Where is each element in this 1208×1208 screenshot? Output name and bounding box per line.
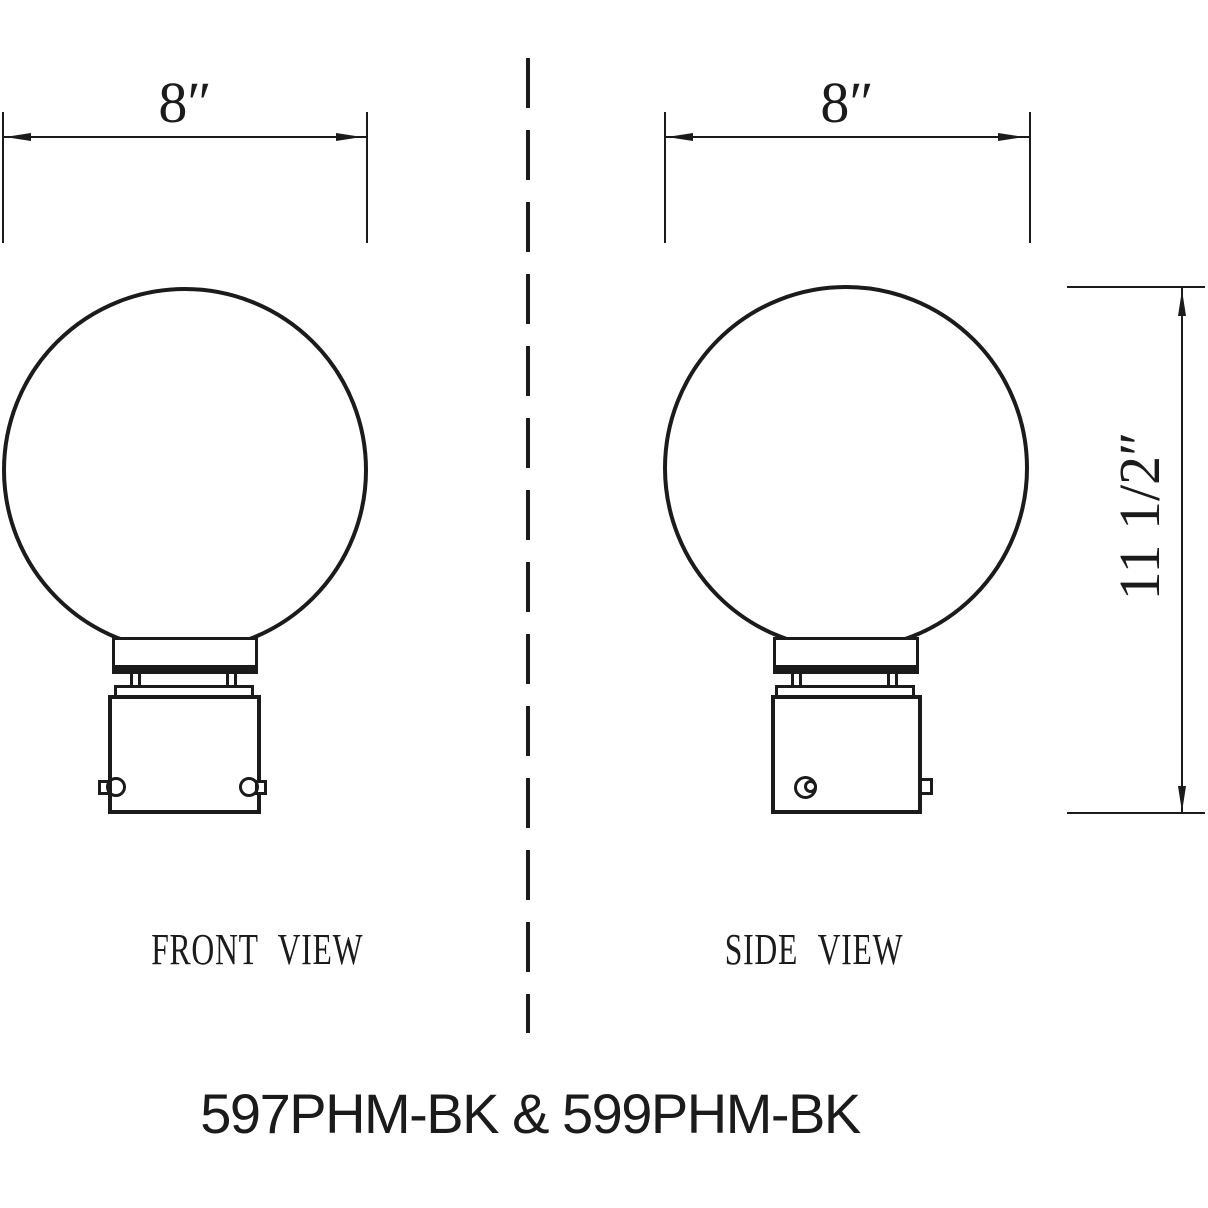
front-dim-arrow-left-icon — [5, 133, 31, 141]
side-extension-line-right — [1029, 112, 1031, 243]
front-set-screw-right-icon — [239, 777, 259, 797]
side-view-caption: SIDE VIEW — [713, 928, 915, 972]
side-mounting-base — [771, 695, 922, 814]
side-set-screw-knob-inner-icon — [804, 780, 817, 793]
front-globe-outline — [2, 287, 368, 653]
side-set-screw-right-tab-icon — [919, 778, 933, 795]
side-globe-outline — [663, 285, 1029, 651]
front-dim-arrow-right-icon — [336, 133, 362, 141]
center-divider-dashed-line — [526, 58, 530, 1033]
front-set-screw-left-icon — [106, 777, 126, 797]
height-dim-arrow-up-icon — [1178, 290, 1186, 316]
side-dimension-line — [665, 136, 1029, 138]
front-view-caption: FRONT VIEW — [151, 928, 353, 972]
side-extension-line-left — [664, 112, 666, 243]
height-extension-line-top — [1067, 286, 1205, 288]
front-width-dimension-label: 8″ — [135, 74, 235, 132]
front-globe-collar — [112, 637, 258, 674]
side-width-dimension-label: 8″ — [797, 74, 897, 132]
spec-sheet-drawing: 8″ FRONT VIEW 8″ — [0, 0, 1208, 1208]
height-dimension-label: 11 1/2″ — [1111, 396, 1169, 636]
height-dim-arrow-down-icon — [1178, 786, 1186, 812]
front-extension-line-right — [366, 112, 368, 243]
model-number-title: 597PHM-BK & 599PHM-BK — [130, 1086, 930, 1142]
front-mounting-base — [108, 695, 261, 814]
side-globe-collar — [773, 637, 919, 674]
height-extension-line-bottom — [1067, 812, 1205, 814]
front-extension-line-left — [2, 112, 4, 243]
side-dim-arrow-right-icon — [998, 133, 1024, 141]
front-dimension-line — [3, 136, 367, 138]
height-dimension-line — [1181, 288, 1183, 812]
side-dim-arrow-left-icon — [667, 133, 693, 141]
